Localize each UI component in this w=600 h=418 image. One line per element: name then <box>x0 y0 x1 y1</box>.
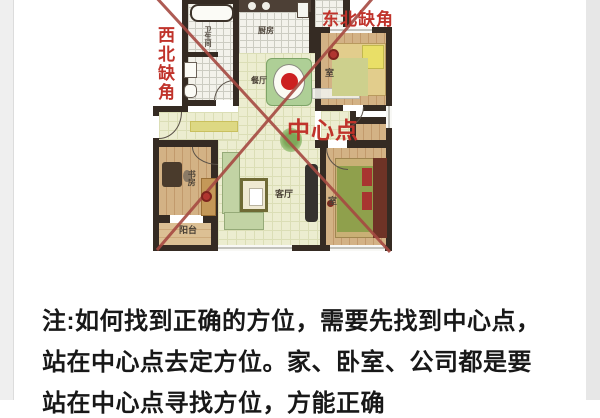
page-right-edge <box>586 0 600 400</box>
page-left-edge <box>0 0 14 400</box>
cross-line-dot <box>328 49 339 60</box>
center-point-label: 中心点 <box>287 111 359 145</box>
note-line-2: 站在中心点去定方位。家、卧室、公司都是要 <box>42 342 532 377</box>
cross-line-dot <box>201 191 212 202</box>
northwest-missing-corner-label: 西北缺角 <box>152 26 177 102</box>
note-line-1: 注:如何找到正确的方位，需要先找到中心点， <box>42 301 541 336</box>
note-line-3: 站在中心点寻找方位，方能正确 <box>42 383 385 418</box>
northeast-missing-corner-label: 东北缺角 <box>322 5 394 30</box>
